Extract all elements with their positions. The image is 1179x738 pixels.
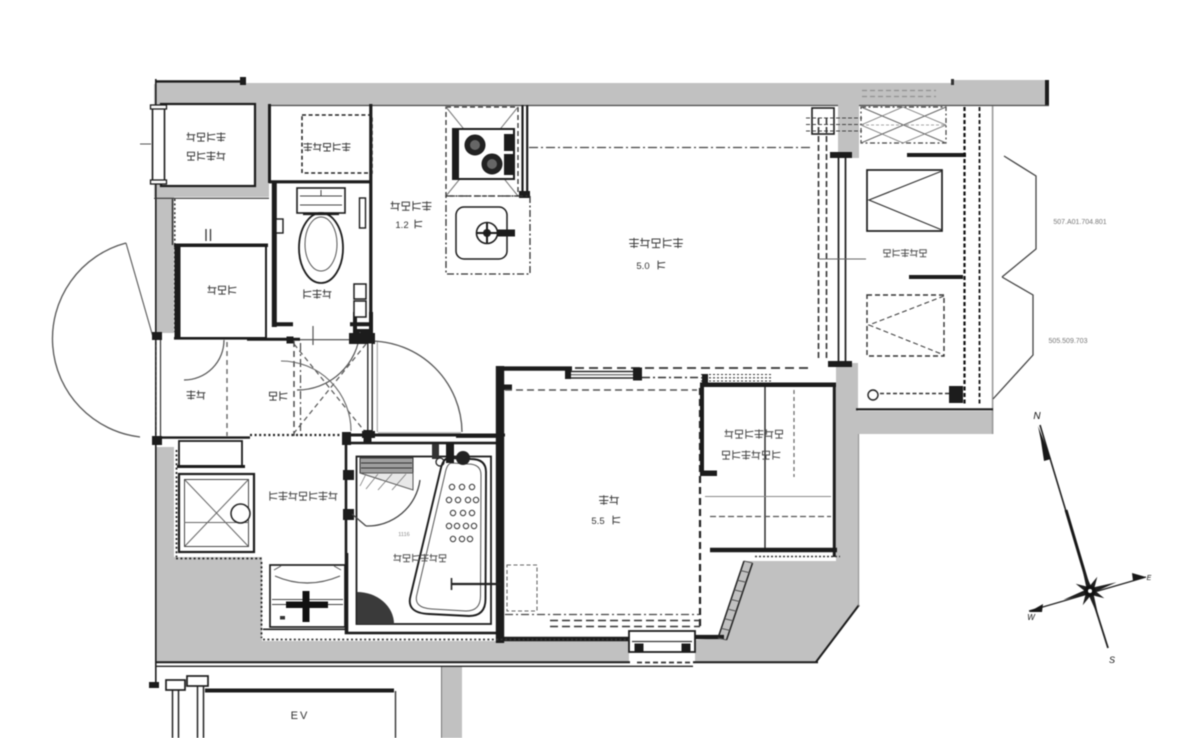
svg-text:S: S xyxy=(1109,655,1115,665)
svg-text:N: N xyxy=(1033,411,1041,422)
svg-text:EV: EV xyxy=(291,710,310,722)
svg-text:507.A01.704.801: 507.A01.704.801 xyxy=(1053,219,1106,226)
svg-text:1.2: 1.2 xyxy=(395,220,408,231)
svg-text:505.509.703: 505.509.703 xyxy=(1049,338,1088,345)
svg-text:1116: 1116 xyxy=(398,532,409,538)
svg-text:5.0: 5.0 xyxy=(636,261,649,272)
svg-text:5.5: 5.5 xyxy=(591,516,604,527)
svg-text:E: E xyxy=(1147,575,1152,582)
